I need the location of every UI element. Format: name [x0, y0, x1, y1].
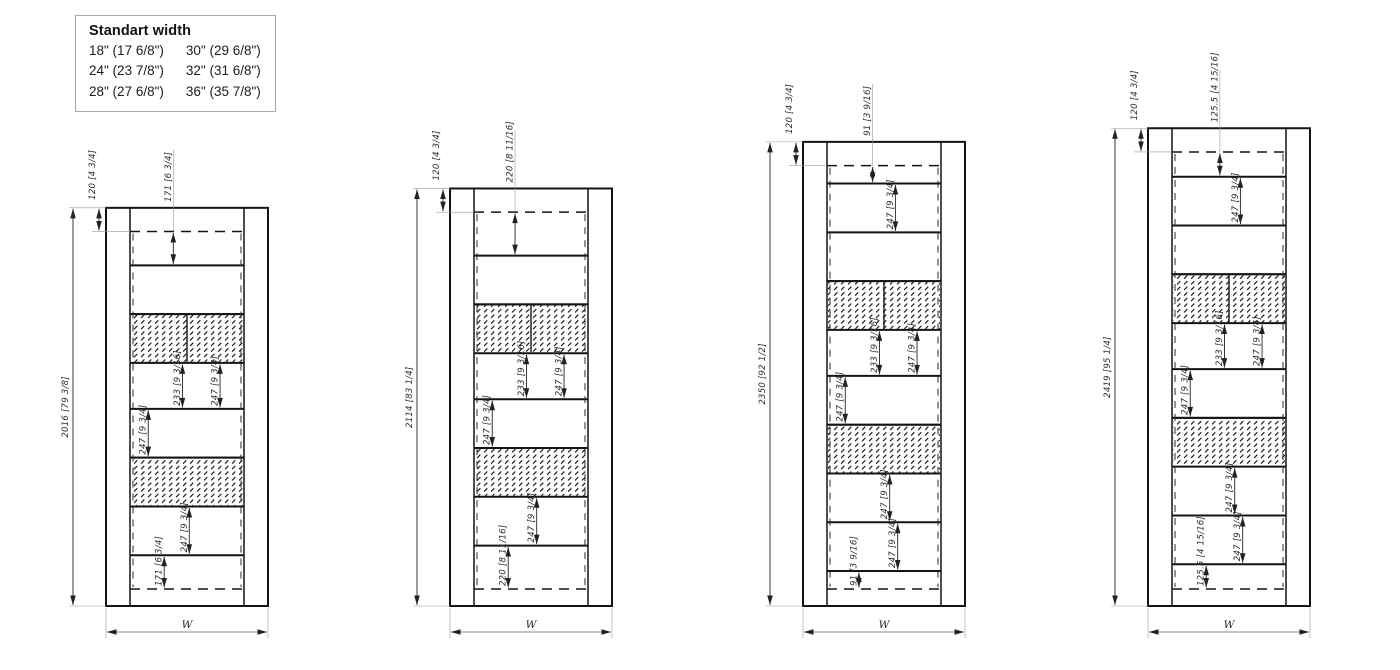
dim-label: 125.5 [4 15/16] — [1210, 52, 1220, 122]
dim-label: 247 [9 3/4] — [1231, 172, 1241, 222]
dim-label: 247 [9 3/4] — [483, 395, 493, 445]
cabinet-2: 220 [8 11/16]233 [9 3/16]247 [9 3/4]247 … — [405, 121, 612, 638]
width-option: 30" (29 6/8") — [186, 41, 261, 61]
top-offset-label: 120 [4 3/4] — [432, 130, 442, 180]
dim-label: 247 [9 3/4] — [1225, 462, 1235, 512]
dim-label: 247 [9 3/4] — [180, 502, 190, 552]
dim-label: 171 [6 3/4] — [155, 536, 165, 586]
top-offset-label: 120 [4 3/4] — [785, 84, 795, 134]
width-dimension-label: W — [1224, 619, 1236, 631]
width-dimension-label: W — [526, 619, 538, 631]
top-offset-label: 120 [4 3/4] — [88, 150, 98, 200]
dim-label: 233 [9 3/16] — [173, 350, 183, 406]
dim-label: 247 [9 3/4] — [211, 356, 221, 406]
top-offset-label: 120 [4 3/4] — [1130, 70, 1140, 120]
width-option: 36" (35 7/8") — [186, 82, 261, 102]
dim-label: 247 [9 3/4] — [555, 346, 565, 396]
total-height-label: 2350 [92 1/2] — [758, 343, 768, 404]
dim-label: 247 [9 3/4] — [908, 323, 918, 373]
total-height-label: 2419 [95 1/4] — [1103, 336, 1113, 397]
dim-label: 233 [9 3/16] — [1215, 310, 1225, 366]
dim-label: 220 [8 11/16] — [506, 121, 516, 182]
width-dimension-label: W — [182, 619, 194, 631]
total-height-label: 2016 [79 3/8] — [61, 376, 71, 437]
dim-label: 171 [6 3/4] — [164, 152, 174, 202]
legend-title: Standart width — [89, 23, 261, 39]
dim-label: 247 [9 3/4] — [886, 179, 896, 229]
dim-label: 91 [3 9/16] — [849, 536, 859, 586]
hatch-panel — [131, 459, 243, 506]
dim-label: 247 [9 3/4] — [1233, 511, 1243, 561]
cabinet-1: 171 [6 3/4]233 [9 3/16]247 [9 3/4]247 [9… — [61, 150, 268, 638]
hatch-panel — [1173, 419, 1285, 466]
hatch-panel — [828, 426, 940, 473]
dim-label: 125.5 [4 15/16] — [1197, 516, 1207, 586]
dim-label: 247 [9 3/4] — [139, 405, 149, 455]
dim-label: 247 [9 3/4] — [888, 518, 898, 568]
dim-label: 91 [3 9/16] — [863, 86, 873, 136]
cabinet-4: 125.5 [4 15/16]247 [9 3/4]233 [9 3/16]24… — [1103, 52, 1310, 638]
width-option: 32" (31 6/8") — [186, 61, 261, 81]
hatch-panel — [475, 449, 587, 496]
dim-label: 233 [9 3/16] — [517, 340, 527, 396]
cabinet-3: 91 [3 9/16]247 [9 3/4]233 [9 3/16]247 [9… — [758, 84, 965, 638]
dim-label: 247 [9 3/4] — [880, 469, 890, 519]
dim-label: 233 [9 3/16] — [870, 317, 880, 373]
width-option: 18" (17 6/8") — [89, 41, 164, 61]
dim-label: 247 [9 3/4] — [527, 492, 537, 542]
width-option: 24" (23 7/8") — [89, 61, 164, 81]
dim-label: 247 [9 3/4] — [836, 372, 846, 422]
dim-label: 247 [9 3/4] — [1181, 365, 1191, 415]
width-dimension-label: W — [879, 619, 891, 631]
total-height-label: 2114 [83 1/4] — [405, 367, 415, 428]
legend-options: 18" (17 6/8") 30" (29 6/8") 24" (23 7/8"… — [89, 41, 261, 102]
dim-label: 247 [9 3/4] — [1253, 316, 1263, 366]
width-option: 28" (27 6/8") — [89, 82, 164, 102]
dim-label: 220 [8 11/16] — [499, 525, 509, 586]
standard-width-legend: Standart width 18" (17 6/8") 30" (29 6/8… — [75, 15, 276, 112]
